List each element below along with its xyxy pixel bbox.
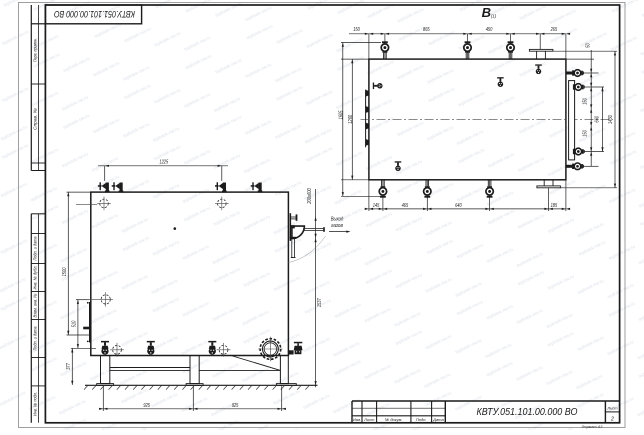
svg-text:Формат А3: Формат А3: [582, 425, 604, 429]
svg-text:1430: 1430: [608, 115, 614, 124]
svg-text:Дата: Дата: [432, 417, 444, 422]
svg-text:145: 145: [373, 203, 380, 209]
svg-text:КВТУ.051.101.00.000 ВО: КВТУ.051.101.00.000 ВО: [54, 9, 135, 19]
svg-text:465: 465: [402, 203, 409, 209]
svg-text:200х600: 200х600: [307, 188, 313, 204]
svg-text:Инв. № дубл.: Инв. № дубл.: [33, 266, 38, 290]
svg-text:Изм.: Изм.: [353, 417, 362, 422]
svg-text:КВТУ.051.101.00.000 ВО: КВТУ.051.101.00.000 ВО: [477, 407, 578, 418]
svg-text:Подп. и дата: Подп. и дата: [33, 326, 38, 351]
svg-text:B: B: [482, 5, 491, 20]
svg-text:377: 377: [66, 362, 72, 369]
svg-text:865: 865: [423, 27, 430, 33]
svg-text:265: 265: [550, 27, 557, 33]
svg-text:150: 150: [353, 27, 360, 33]
svg-text:2: 2: [610, 417, 614, 423]
svg-text:Подп.: Подп.: [416, 417, 427, 422]
svg-text:1537: 1537: [317, 297, 323, 307]
svg-text:Перв. примен.: Перв. примен.: [33, 38, 38, 62]
svg-text:(1): (1): [491, 14, 497, 19]
svg-text:1260: 1260: [348, 115, 354, 124]
svg-text:Лист: Лист: [363, 417, 375, 422]
svg-text:Инв. № подл.: Инв. № подл.: [33, 392, 38, 416]
svg-text:№ докум.: № докум.: [385, 417, 403, 422]
svg-text:Лист: Лист: [606, 405, 618, 410]
svg-text:Выход: Выход: [331, 216, 344, 222]
svg-text:1605: 1605: [338, 111, 344, 120]
svg-text:925: 925: [232, 403, 239, 409]
svg-text:Справ. №: Справ. №: [33, 108, 38, 130]
svg-text:Подп. и дата: Подп. и дата: [33, 236, 38, 261]
svg-text:150: 150: [582, 130, 588, 137]
svg-text:1500: 1500: [62, 268, 68, 277]
svg-text:925: 925: [143, 403, 150, 409]
svg-text:510: 510: [72, 321, 78, 328]
svg-text:450: 450: [486, 27, 493, 33]
svg-text:660: 660: [594, 116, 600, 123]
svg-text:Взам. инв. №: Взам. инв. №: [33, 293, 38, 317]
svg-text:185: 185: [551, 203, 558, 209]
svg-text:640: 640: [455, 203, 462, 209]
svg-text:50: 50: [585, 43, 591, 47]
svg-text:газов: газов: [331, 223, 343, 229]
svg-text:1225: 1225: [159, 159, 168, 165]
svg-text:150: 150: [582, 98, 588, 105]
